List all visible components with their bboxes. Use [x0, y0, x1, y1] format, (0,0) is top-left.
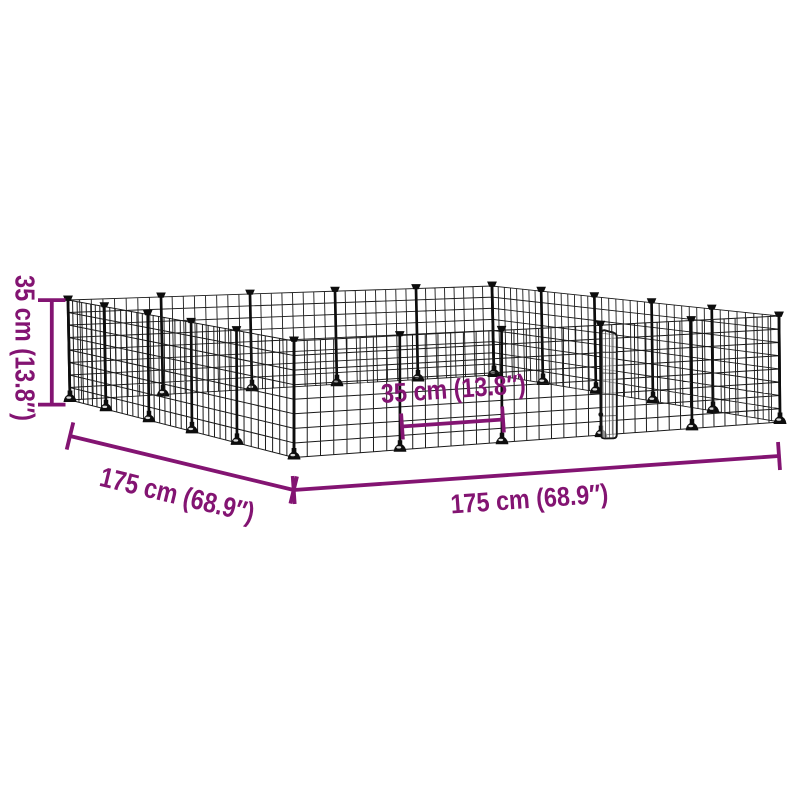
svg-text:35 cm (13.8″): 35 cm (13.8″) [10, 275, 41, 421]
